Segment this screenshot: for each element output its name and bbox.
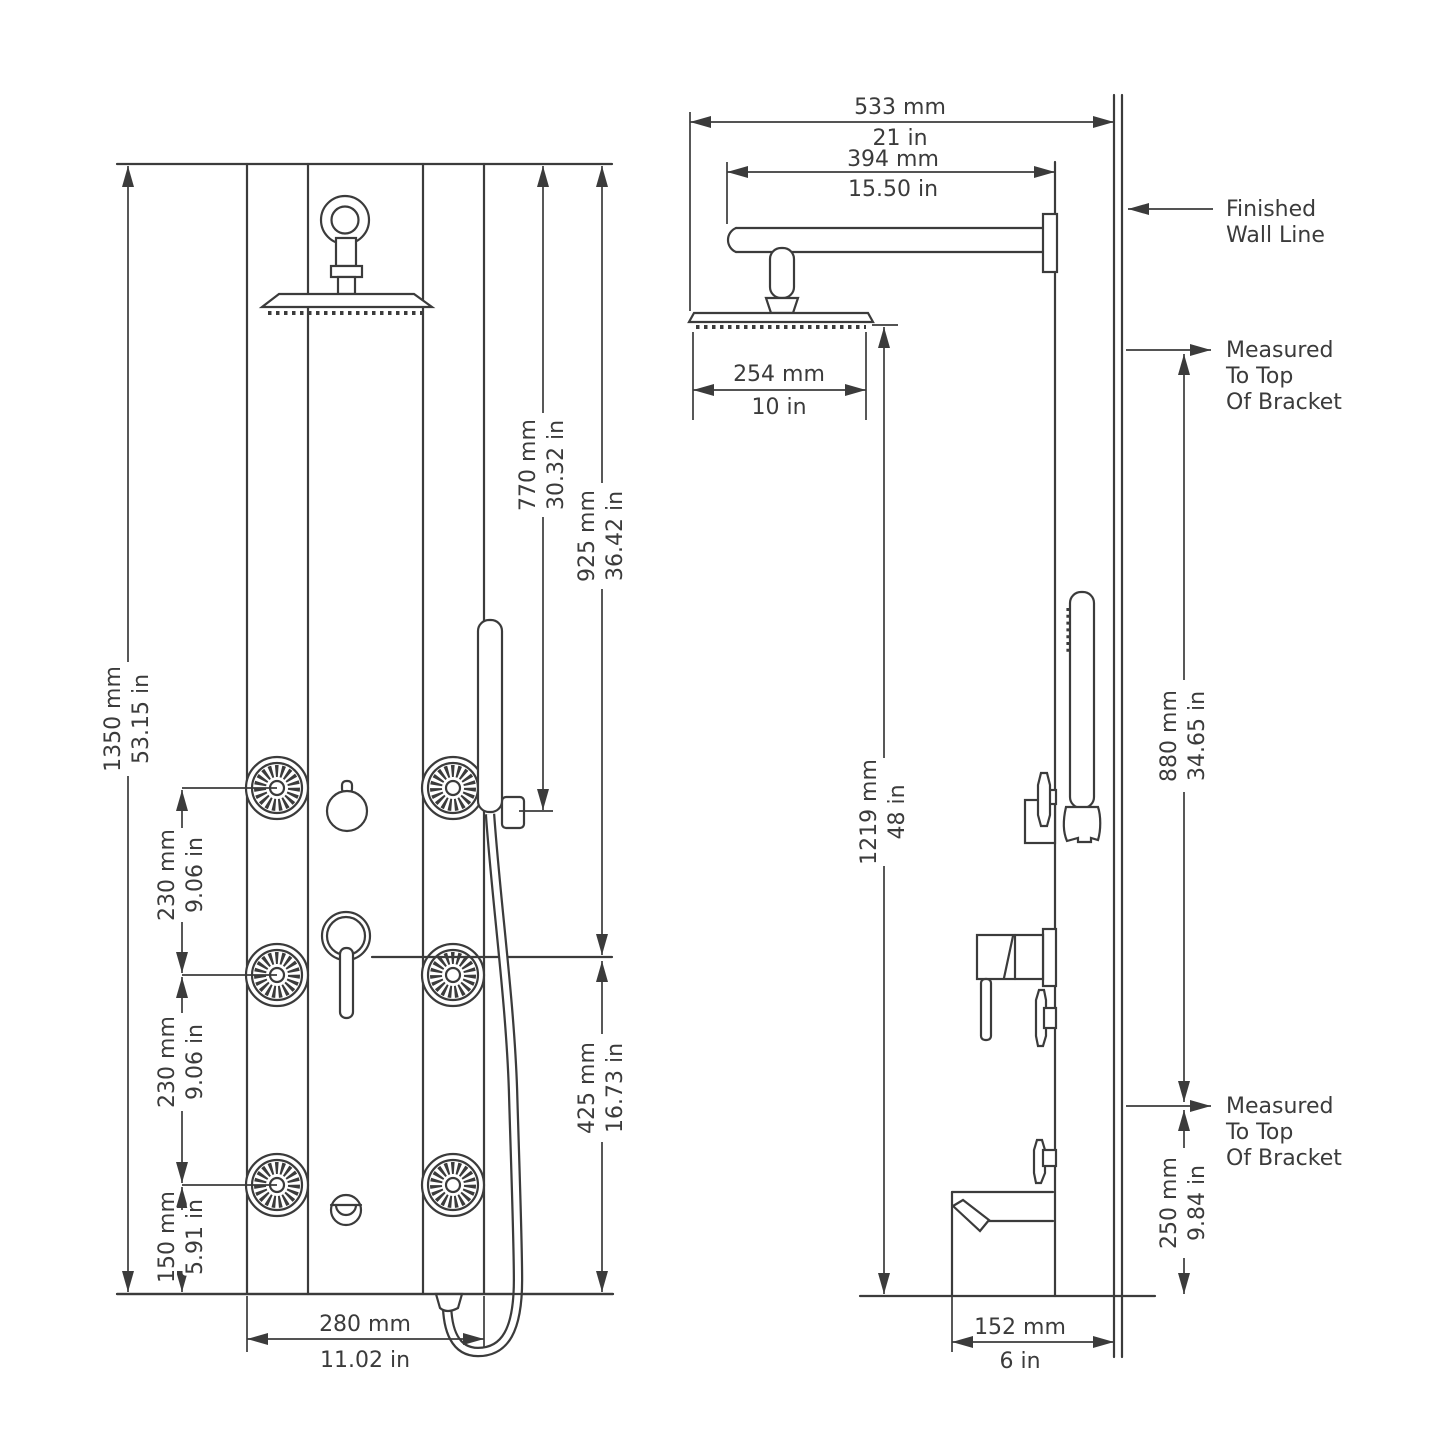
mixer-lever-side [981, 979, 991, 1040]
side-view: 533 mm 21 in 394 mm 15.50 in 254 mm 10 i… [689, 95, 1342, 1374]
body-jet [422, 944, 484, 1006]
dim-panel-width-mm: 280 mm [319, 1312, 411, 1337]
dim-overall-height-mm: 1350 mm [101, 666, 126, 772]
dim-mixer-to-floor: 425 mm 16.73 in [575, 961, 628, 1292]
dim-top-to-mixer-in: 36.42 in [603, 491, 628, 581]
dim-lower-bracket-to-floor-in: 9.84 in [1185, 1165, 1210, 1241]
dim-head-to-wall: 533 mm 21 in [690, 95, 1114, 311]
dim-bracket-spacing-mm: 880 mm [1157, 690, 1182, 782]
hand-shower-side [1064, 592, 1100, 842]
dim-overall-height: 1350 mm 53.15 in [101, 166, 154, 1292]
note-bracket-bottom-3: Of Bracket [1226, 1146, 1342, 1171]
dim-panel-width-in: 11.02 in [320, 1348, 410, 1373]
dim-top-to-mixer-mm: 925 mm [575, 490, 600, 582]
note-finished-wall-line: Finished Wall Line [1128, 197, 1325, 248]
dim-jet-spacing-upper: 230 mm 9.06 in [155, 790, 208, 973]
dim-mixer-to-floor-mm: 425 mm [575, 1042, 600, 1134]
dim-jet-spacing-upper-mm: 230 mm [155, 829, 180, 921]
note-finished-wall-line-2: Wall Line [1226, 223, 1325, 248]
dim-top-to-holder: 770 mm 30.32 in [516, 166, 569, 810]
note-finished-wall-line-1: Finished [1226, 197, 1316, 222]
dim-jet-spacing-lower-in: 9.06 in [183, 1024, 208, 1100]
dim-overall-height-in: 53.15 in [129, 674, 154, 764]
tub-spout-front [331, 1195, 361, 1225]
note-bracket-bottom-1: Measured [1226, 1094, 1333, 1119]
diverter-knob-front [327, 781, 367, 831]
note-bracket-top-1: Measured [1226, 338, 1333, 363]
note-bracket-top-2: To Top [1225, 364, 1293, 389]
rain-shower-head-side [689, 313, 873, 327]
dim-jet-to-floor: 150 mm 5.91 in [155, 1187, 208, 1292]
dim-jet-spacing-upper-in: 9.06 in [183, 837, 208, 913]
dim-bracket-spacing-in: 34.65 in [1185, 691, 1210, 781]
dim-top-to-holder-mm: 770 mm [516, 419, 541, 511]
lower-bracket-side [1034, 1140, 1056, 1183]
hand-shower-hose [447, 814, 518, 1352]
body-jet [422, 757, 484, 819]
front-view: 1350 mm 53.15 in 770 mm 30.32 in 925 mm … [101, 164, 628, 1373]
dim-mixer-to-floor-in: 16.73 in [603, 1043, 628, 1133]
dim-head-width: 254 mm 10 in [693, 332, 866, 420]
hand-shower-spray-head [1064, 807, 1100, 842]
dim-arm-length-mm: 394 mm [847, 147, 939, 172]
dim-lower-bracket-to-floor-mm: 250 mm [1157, 1157, 1182, 1249]
hand-shower-wand-side [1070, 592, 1094, 808]
rain-shower-head-front [262, 196, 432, 313]
technical-drawing-page: 1350 mm 53.15 in 770 mm 30.32 in 925 mm … [0, 0, 1445, 1445]
dim-bracket-spacing: 880 mm 34.65 in [1157, 354, 1210, 1102]
head-ball-joint [770, 248, 794, 298]
dim-head-width-in: 10 in [751, 395, 806, 420]
note-bracket-top-3: Of Bracket [1226, 390, 1342, 415]
dim-top-to-mixer: 925 mm 36.42 in [575, 166, 628, 955]
dim-head-width-mm: 254 mm [733, 362, 825, 387]
dim-spout-to-wall: 152 mm 6 in [952, 1296, 1114, 1374]
spout-lip [953, 1200, 989, 1231]
shower-panel-installation-diagram: 1350 mm 53.15 in 770 mm 30.32 in 925 mm … [0, 0, 1445, 1445]
hand-shower-wand [478, 620, 502, 812]
dim-spout-to-wall-in: 6 in [999, 1349, 1040, 1374]
finished-wall-line [1114, 95, 1122, 1357]
dim-jet-to-floor-in: 5.91 in [183, 1199, 208, 1275]
note-bracket-bottom-2: To Top [1225, 1120, 1293, 1145]
dim-arm-length: 394 mm 15.50 in [727, 147, 1055, 224]
dim-spout-to-wall-mm: 152 mm [974, 1315, 1066, 1340]
hand-shower-bracket-side [1025, 773, 1056, 843]
note-bracket-top: Measured To Top Of Bracket [1126, 338, 1342, 415]
dim-lower-bracket-to-floor: 250 mm 9.84 in [1157, 1110, 1210, 1294]
dim-head-to-floor-mm: 1219 mm [857, 759, 882, 865]
dim-arm-length-in: 15.50 in [848, 177, 938, 202]
dim-head-to-floor-in: 48 in [885, 784, 910, 839]
arm-escutcheon [1043, 214, 1057, 272]
dim-jet-to-floor-mm: 150 mm [155, 1191, 180, 1283]
dim-head-to-wall-mm: 533 mm [854, 95, 946, 120]
dim-top-to-holder-in: 30.32 in [544, 420, 569, 510]
body-jet [422, 1154, 484, 1216]
mixer-valve-side [977, 929, 1056, 1046]
hose-connector [436, 1294, 462, 1311]
tub-spout-side [952, 1192, 1053, 1296]
hand-shower-holder [502, 797, 524, 828]
shower-arm-side [728, 214, 1057, 313]
dim-jet-spacing-lower: 230 mm 9.06 in [155, 977, 208, 1183]
dim-head-to-floor: 1219 mm 48 in [857, 325, 910, 1294]
dim-jet-spacing-lower-mm: 230 mm [155, 1016, 180, 1108]
